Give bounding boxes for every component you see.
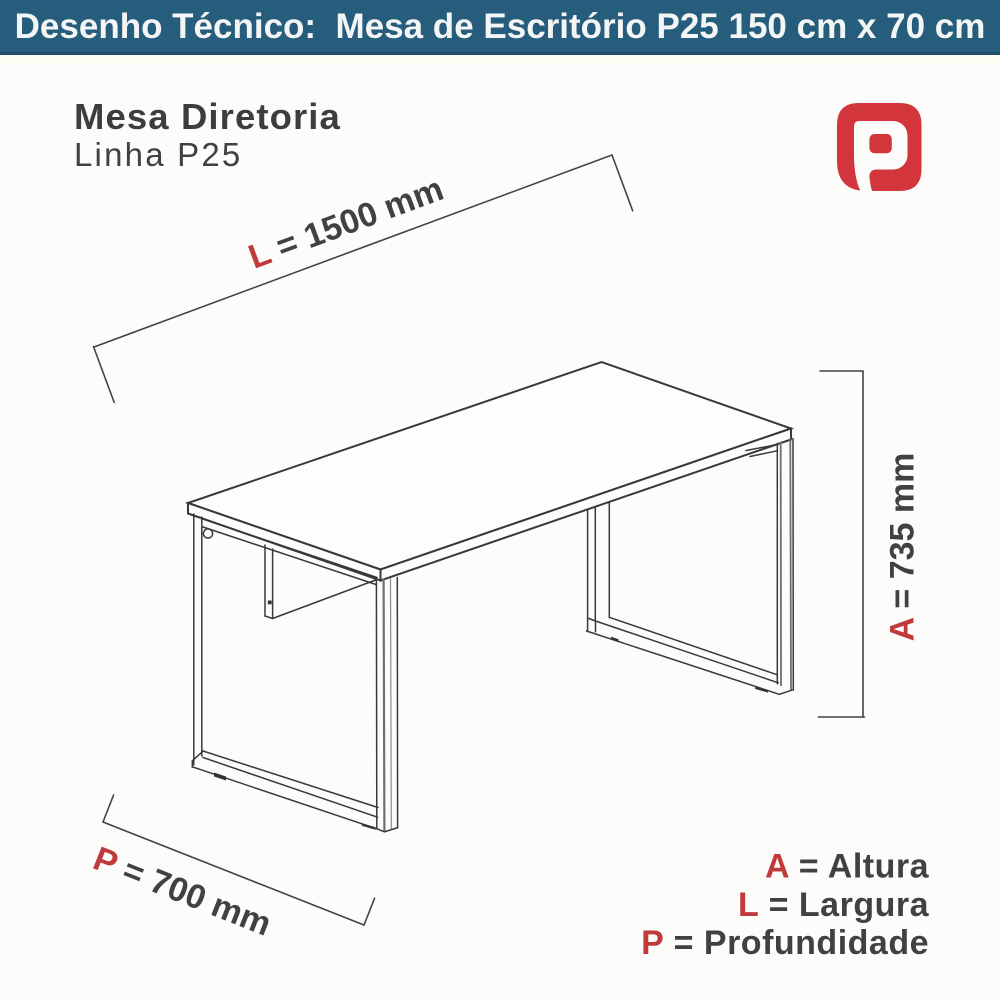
svg-text:A = Altura: A = Altura [765,848,930,886]
svg-text:L = 1500 mm: L = 1500 mm [244,170,449,277]
svg-text:L = Largura: L = Largura [738,886,930,924]
svg-text:A = 735 mm: A = 735 mm [884,453,922,642]
svg-text:P = Profundidade: P = Profundidade [641,924,929,962]
svg-text:P = 700 mm: P = 700 mm [88,840,276,944]
